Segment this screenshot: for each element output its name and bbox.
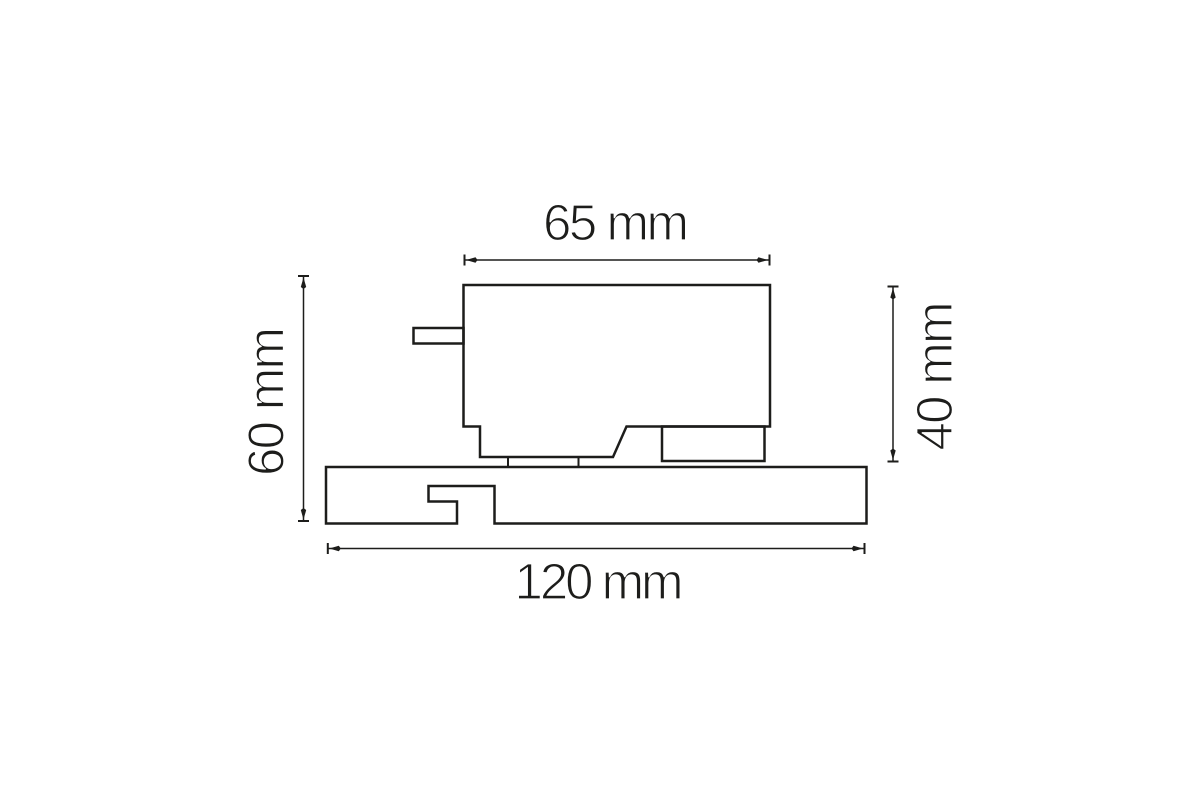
svg-text:40 mm: 40 mm: [906, 302, 963, 451]
svg-text:65 mm: 65 mm: [543, 194, 689, 251]
svg-text:120 mm: 120 mm: [515, 553, 684, 610]
svg-text:60 mm: 60 mm: [238, 327, 295, 476]
